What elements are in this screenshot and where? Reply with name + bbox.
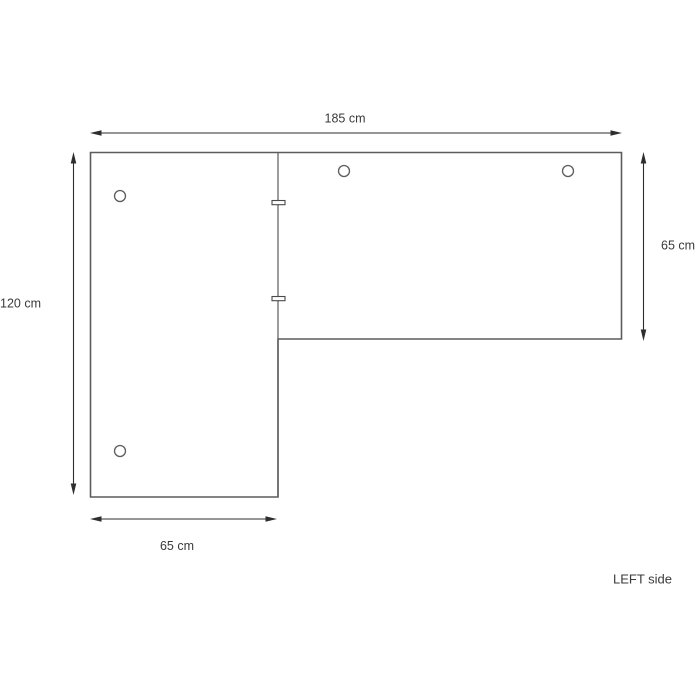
screw-hole [563,166,574,177]
desk-plan-drawing: 185 cm 65 cm 120 cm 65 cm LEFT side [0,0,700,700]
arrow-up-icon [71,152,77,164]
drawing-caption: LEFT side [613,572,672,587]
arrow-down-icon [641,330,647,342]
holes-layer [115,166,574,457]
arrow-down-icon [71,484,77,496]
desk-outline [91,153,622,498]
arrow-left-icon [90,516,102,522]
dimension-label-left-depth: 120 cm [0,297,41,311]
dimension-left-depth: 120 cm [0,152,76,495]
dimension-right-depth: 65 cm [641,152,695,341]
arrow-left-icon [90,130,102,136]
dimension-label-top-width: 185 cm [325,112,366,126]
dimension-label-bottom-width: 65 cm [160,539,194,553]
screw-hole [115,446,126,457]
dimension-bottom-width: 65 cm [90,516,277,553]
arrow-right-icon [266,516,278,522]
dimension-top-width: 185 cm [90,112,622,136]
drawing-canvas: 185 cm 65 cm 120 cm 65 cm LEFT side [0,0,700,700]
panel-connector [272,297,285,301]
screw-hole [339,166,350,177]
arrow-right-icon [611,130,623,136]
dimension-label-right-depth: 65 cm [661,239,695,253]
panel-connector [272,201,285,205]
screw-hole [115,191,126,202]
arrow-up-icon [641,152,647,164]
